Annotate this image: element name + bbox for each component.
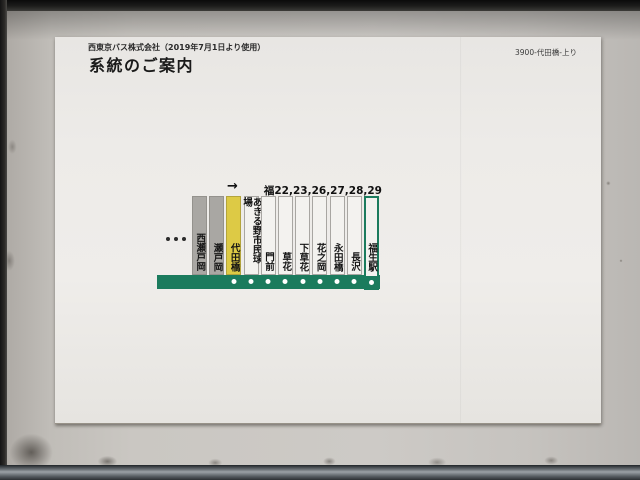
- stop-column: 西瀬戸岡: [192, 196, 207, 275]
- stop-dot: [249, 279, 254, 284]
- paper-crease: [460, 37, 462, 423]
- continuation-dot: [174, 237, 178, 241]
- stop-dot: [369, 280, 374, 285]
- stop-name: 花之岡: [315, 243, 325, 275]
- sign-title: 系統のご案内: [89, 52, 194, 76]
- stop-column: 草花: [278, 196, 293, 275]
- stop-dot: [352, 279, 357, 284]
- stop-column: 花之岡: [312, 196, 327, 275]
- stop-name: 福生駅: [367, 243, 377, 275]
- sign-code: 3900-代田橋-上り: [515, 47, 577, 58]
- continuation-dots-icon: [166, 237, 186, 241]
- stop-dot: [317, 279, 322, 284]
- stop-column: 門前: [261, 196, 276, 275]
- stop-name: 永田橋: [332, 243, 342, 275]
- stop-column: あきる野市民球場: [244, 196, 259, 275]
- stop-name: 瀬戸岡: [212, 243, 222, 275]
- stop-name: 門前: [264, 252, 274, 274]
- stop-name: 草花: [281, 252, 291, 274]
- photo-frame: 西東京バス株式会社（2019年7月1日より使用） 系統のご案内 3900-代田橋…: [0, 0, 640, 480]
- continuation-dot: [182, 237, 186, 241]
- stops-row: 西瀬戸岡瀬戸岡代田橋あきる野市民球場門前草花下草花花之岡永田橋長沢福生駅: [192, 196, 379, 290]
- stop-dot: [300, 279, 305, 284]
- sign-paper: 西東京バス株式会社（2019年7月1日より使用） 系統のご案内 3900-代田橋…: [55, 37, 601, 424]
- stop-dot: [335, 279, 340, 284]
- stop-name: 西瀬戸岡: [195, 233, 205, 274]
- stop-column: 長沢: [347, 196, 362, 275]
- stop-name: 下草花: [298, 243, 308, 275]
- stop-column: 代田橋: [226, 196, 241, 275]
- route-diagram: 福22,23,26,27,28,29 → 西瀬戸岡瀬戸岡代田橋あきる野市民球場門…: [157, 178, 383, 293]
- stop-dot: [283, 279, 288, 284]
- stop-column: 永田橋: [330, 196, 345, 275]
- continuation-dot: [166, 237, 170, 241]
- stop-name: 長沢: [349, 252, 359, 274]
- direction-arrow-icon: →: [227, 179, 238, 194]
- frame-left-edge: [0, 0, 7, 480]
- stop-name: 代田橋: [229, 243, 239, 275]
- stop-dot: [231, 279, 236, 284]
- frame-bottom-rail: [0, 465, 640, 480]
- stop-name: あきる野市民球場: [242, 197, 261, 274]
- terminal-stop-column: 福生駅: [364, 196, 379, 290]
- stop-column: 瀬戸岡: [209, 196, 224, 275]
- stop-dot: [266, 279, 271, 284]
- stop-column: 下草花: [295, 196, 310, 275]
- terminal-line-segment: [366, 276, 377, 288]
- frame-top-edge: [0, 0, 640, 11]
